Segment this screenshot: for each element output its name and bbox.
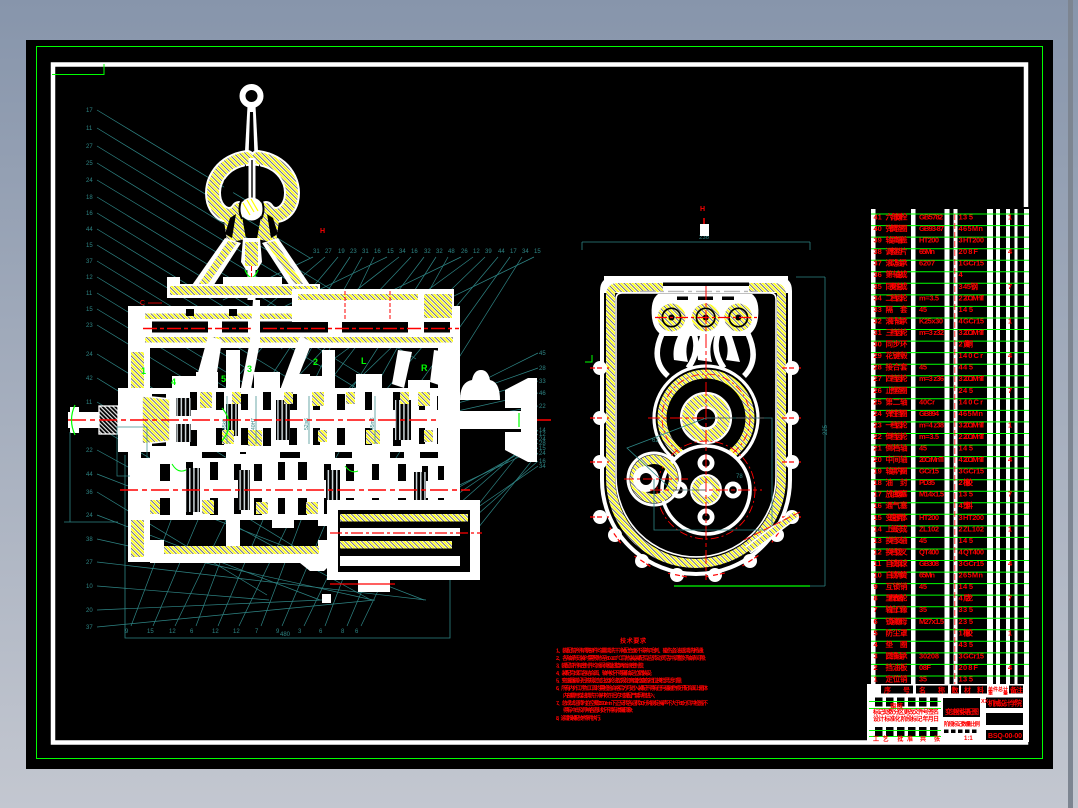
svg-text:31: 31 — [874, 328, 882, 337]
svg-text:换档叉轴: 换档叉轴 — [886, 535, 909, 545]
svg-text:48: 48 — [448, 249, 455, 255]
svg-text:挡油板: 挡油板 — [886, 662, 909, 672]
svg-text:L: L — [361, 356, 367, 366]
svg-text:3、装配前所有密封件均涂润滑脂,纸垫两面涂密封胶;: 3、装配前所有密封件均涂润滑脂,纸垫两面涂密封胶; — [556, 662, 644, 670]
svg-text:备注: 备注 — [1009, 686, 1023, 695]
svg-text:26: 26 — [461, 249, 468, 255]
svg-text:22: 22 — [874, 432, 882, 441]
svg-text:2: 2 — [874, 663, 878, 672]
svg-text:2: 2 — [313, 357, 318, 367]
svg-text:1: 1 — [1008, 628, 1012, 637]
svg-text:15: 15 — [86, 243, 93, 249]
svg-text:20CrMnTi: 20CrMnTi — [963, 374, 984, 383]
svg-text:二档齿轮: 二档齿轮 — [886, 292, 909, 302]
svg-text:22: 22 — [86, 448, 93, 454]
svg-text:34: 34 — [539, 464, 546, 470]
svg-text:互锁销: 互锁销 — [886, 581, 909, 591]
svg-text:PD35: PD35 — [919, 478, 935, 487]
svg-text:4: 4 — [171, 377, 176, 387]
svg-text:20CrMnTi: 20CrMnTi — [963, 328, 984, 337]
svg-text:78: 78 — [736, 474, 743, 480]
svg-text:8: 8 — [874, 594, 878, 603]
svg-text:1: 1 — [141, 366, 146, 376]
svg-text:设计 标准化 阶段标记 年月日: 设计 标准化 阶段标记 年月日 — [873, 715, 939, 723]
svg-text:上盖总成: 上盖总成 — [886, 523, 909, 533]
svg-text:31: 31 — [313, 249, 320, 255]
svg-text:44: 44 — [86, 472, 93, 478]
svg-text:12: 12 — [233, 629, 240, 635]
svg-text:35: 35 — [963, 213, 973, 222]
svg-text:45: 45 — [963, 536, 973, 545]
svg-text:37: 37 — [874, 259, 882, 268]
svg-text:ZL102: ZL102 — [963, 524, 984, 533]
svg-text:m=4 z38: m=4 z38 — [919, 420, 944, 429]
svg-text:45: 45 — [919, 305, 927, 314]
svg-text:45钢: 45钢 — [963, 281, 979, 291]
svg-text:12: 12 — [874, 548, 882, 557]
svg-text:18: 18 — [86, 195, 93, 201]
svg-text:定位销: 定位销 — [886, 674, 909, 684]
svg-text:65Mn: 65Mn — [919, 247, 935, 256]
svg-text:08F: 08F — [963, 663, 978, 672]
svg-text:45: 45 — [963, 444, 973, 453]
svg-text:20CrMnTi: 20CrMnTi — [963, 455, 984, 464]
svg-text:HT200: HT200 — [919, 236, 939, 245]
svg-text:40: 40 — [874, 224, 882, 233]
svg-text:45: 45 — [919, 363, 927, 372]
svg-text:31: 31 — [362, 249, 369, 255]
svg-text:审核: 审核 — [890, 701, 904, 710]
svg-text:35: 35 — [919, 605, 927, 614]
svg-text:里程表齿轮: 里程表齿轮 — [886, 593, 909, 603]
svg-text:XX: XX — [981, 699, 989, 705]
svg-text:39: 39 — [874, 236, 882, 245]
svg-text:H: H — [700, 206, 705, 213]
svg-text:1、装配前所有零部件均需清洗干净,配合面不得有毛刺、碰伤,各: 1、装配前所有零部件均需清洗干净,配合面不得有毛刺、碰伤,各油道清洗畅通; — [556, 647, 704, 655]
svg-text:44: 44 — [498, 249, 505, 255]
svg-text:32: 32 — [424, 249, 431, 255]
svg-text:QT400: QT400 — [963, 548, 984, 557]
svg-text:11: 11 — [86, 126, 93, 132]
svg-text:同步环: 同步环 — [886, 339, 909, 349]
svg-text:止推垫圈: 止推垫圈 — [886, 385, 909, 395]
svg-text:1:1: 1:1 — [964, 736, 973, 742]
svg-text:20: 20 — [86, 608, 93, 614]
svg-text:GCr15: GCr15 — [963, 467, 984, 476]
svg-text:36: 36 — [86, 490, 93, 496]
svg-text:防尘罩: 防尘罩 — [886, 627, 909, 637]
svg-text:花键毂: 花键毂 — [886, 350, 909, 360]
svg-text:GCr15: GCr15 — [963, 651, 984, 660]
svg-text:5: 5 — [874, 628, 878, 637]
svg-text:4、装配完成后各结合面、轴伸处不得漏油,定位销装妥;: 4、装配完成后各结合面、轴伸处不得漏油,定位销装妥; — [556, 669, 652, 677]
svg-text:32: 32 — [874, 316, 882, 325]
svg-text:GCr15: GCr15 — [963, 259, 984, 268]
svg-text:20: 20 — [874, 455, 882, 464]
svg-text:自锁钢球: 自锁钢球 — [886, 558, 909, 568]
svg-text:材 料: 材 料 — [963, 686, 984, 695]
svg-text:24: 24 — [539, 451, 546, 457]
svg-text:1: 1 — [1008, 524, 1012, 533]
svg-text:7: 7 — [1008, 490, 1012, 499]
svg-text:7: 7 — [1008, 386, 1012, 395]
svg-text:橡胶: 橡胶 — [963, 627, 974, 637]
svg-text:序 号: 序 号 — [883, 686, 910, 695]
svg-text:35: 35 — [963, 605, 973, 614]
svg-text:15: 15 — [86, 307, 93, 313]
svg-text:7: 7 — [1008, 594, 1012, 603]
svg-text:24: 24 — [86, 178, 93, 184]
svg-text:27: 27 — [86, 560, 93, 566]
svg-text:23: 23 — [874, 420, 882, 429]
svg-text:28: 28 — [539, 366, 546, 372]
svg-text:35: 35 — [963, 617, 973, 626]
svg-text:41: 41 — [874, 213, 882, 222]
svg-text:16: 16 — [411, 249, 418, 255]
svg-text:36: 36 — [874, 270, 882, 279]
svg-text:GCr15: GCr15 — [963, 559, 984, 568]
svg-text:数: 数 — [952, 686, 960, 695]
svg-text:7: 7 — [1008, 282, 1012, 291]
svg-text:35: 35 — [963, 490, 973, 499]
svg-text:第二轴: 第二轴 — [886, 396, 909, 406]
svg-text:08F: 08F — [963, 247, 978, 256]
svg-text:HT200: HT200 — [919, 513, 939, 522]
svg-text:24: 24 — [874, 409, 883, 418]
svg-text:通气塞: 通气塞 — [886, 500, 909, 510]
svg-text:15: 15 — [387, 249, 394, 255]
svg-text:45m6: 45m6 — [370, 417, 376, 430]
svg-text:BSQ-00-00: BSQ-00-00 — [988, 733, 1022, 740]
svg-text:塑料: 塑料 — [963, 500, 974, 510]
svg-text:08F: 08F — [919, 663, 931, 672]
svg-text:34: 34 — [399, 249, 406, 255]
svg-text:QT400: QT400 — [919, 548, 939, 557]
svg-text:5: 5 — [221, 374, 226, 384]
svg-text:25: 25 — [874, 397, 882, 406]
svg-text:40Cr: 40Cr — [919, 397, 935, 406]
svg-text:35: 35 — [874, 282, 882, 291]
svg-text:10: 10 — [86, 584, 93, 590]
svg-text:标记 处数 分区 更改文件号 签名: 标记 处数 分区 更改文件号 签名 — [872, 708, 939, 716]
svg-text:6: 6 — [874, 617, 878, 626]
svg-text:38: 38 — [874, 247, 882, 256]
svg-text:2、各轴承安装时需预热至80-100℃后热装,装配后应转动灵: 2、各轴承安装时需预热至80-100℃后热装,装配后应转动灵活并调整好轴承间隙; — [556, 654, 706, 662]
svg-text:第一轴总成: 第一轴总成 — [886, 269, 909, 279]
svg-text:62: 62 — [652, 438, 659, 444]
svg-text:11: 11 — [874, 559, 882, 568]
svg-text:GB894: GB894 — [919, 409, 940, 418]
svg-text:22: 22 — [539, 404, 546, 410]
svg-text:45: 45 — [539, 351, 546, 357]
svg-text:滚动轴承: 滚动轴承 — [886, 258, 909, 268]
svg-text:放油螺塞: 放油螺塞 — [885, 489, 909, 499]
svg-text:12: 12 — [212, 629, 219, 635]
svg-text:调整垫片: 调整垫片 — [886, 246, 908, 256]
svg-text:39: 39 — [485, 249, 492, 255]
svg-text:33: 33 — [539, 379, 546, 385]
svg-text:3: 3 — [874, 651, 878, 660]
svg-text:13: 13 — [874, 536, 882, 545]
svg-text:35: 35 — [919, 675, 927, 684]
svg-text:7、总成试运转时,在空载1500r/min下正反转各运转30: 7、总成试运转时,在空载1500r/min下正反转各运转30分钟,测定噪声不大于… — [556, 699, 709, 707]
svg-text:28: 28 — [874, 363, 882, 372]
svg-text:1: 1 — [1008, 213, 1012, 222]
svg-text:橡胶: 橡胶 — [963, 477, 974, 487]
svg-text:32: 32 — [436, 249, 443, 255]
svg-text:10: 10 — [874, 571, 882, 580]
svg-text:ZL102: ZL102 — [919, 524, 939, 533]
svg-text:三档齿轮: 三档齿轮 — [886, 327, 909, 337]
svg-text:34: 34 — [522, 249, 529, 255]
svg-text:14: 14 — [874, 524, 883, 533]
svg-text:名 称: 名 称 — [919, 686, 945, 695]
svg-text:44: 44 — [86, 227, 93, 233]
svg-text:20CrMnTi: 20CrMnTi — [963, 420, 984, 429]
svg-text:45: 45 — [919, 582, 927, 591]
svg-text:工艺 批准: 工艺 批准 — [873, 735, 913, 743]
svg-text:自锁弹簧: 自锁弹簧 — [886, 570, 909, 580]
svg-text:46: 46 — [539, 391, 546, 397]
svg-text:C: C — [140, 300, 145, 307]
svg-text:H: H — [320, 228, 325, 235]
svg-text:倒档轴: 倒档轴 — [885, 443, 909, 453]
svg-text:42: 42 — [86, 376, 93, 382]
svg-text:弹性挡圈: 弹性挡圈 — [886, 408, 909, 418]
svg-text:12: 12 — [169, 629, 176, 635]
svg-text:尼龙: 尼龙 — [963, 593, 974, 603]
svg-text:中间轴: 中间轴 — [886, 454, 909, 464]
svg-text:同步器总成: 同步器总成 — [886, 281, 909, 291]
svg-text:8、涂漆按装配技术条件执行。: 8、涂漆按装配技术条件执行。 — [556, 714, 604, 722]
svg-text:27: 27 — [874, 374, 882, 383]
svg-text:19: 19 — [874, 467, 882, 476]
svg-text:7: 7 — [874, 605, 878, 614]
svg-text:9: 9 — [874, 582, 878, 591]
svg-text:换档拨叉: 换档拨叉 — [886, 547, 909, 557]
svg-text:20CrMnTi: 20CrMnTi — [963, 432, 984, 441]
svg-text:65Mn: 65Mn — [963, 409, 983, 418]
svg-text:45: 45 — [919, 444, 927, 453]
svg-text:1: 1 — [1008, 420, 1012, 429]
svg-text:1: 1 — [874, 675, 878, 684]
svg-text:GB93-87: GB93-87 — [919, 224, 944, 233]
svg-text:滚针轴承: 滚针轴承 — [886, 315, 909, 325]
svg-text:30: 30 — [874, 340, 882, 349]
svg-text:M14x1.5: M14x1.5 — [919, 490, 944, 499]
svg-text:5、变速器装好后按规定加注齿轮油至规定高度,检查各档位换档灵: 5、变速器装好后按规定加注齿轮油至规定高度,检查各档位换档灵活可靠; — [556, 677, 682, 685]
svg-text:3: 3 — [247, 364, 252, 374]
svg-text:15: 15 — [534, 249, 541, 255]
svg-text:65Mn: 65Mn — [919, 571, 935, 580]
svg-text:45: 45 — [963, 305, 973, 314]
svg-text:37: 37 — [86, 625, 93, 631]
svg-text:m=3.5: m=3.5 — [919, 432, 939, 441]
svg-text:15: 15 — [147, 629, 154, 635]
svg-text:得有冲击及异响,各密封处不得有渗漏现象;: 得有冲击及异响,各密封处不得有渗漏现象; — [562, 706, 633, 714]
svg-text:34: 34 — [874, 293, 883, 302]
svg-text:35: 35 — [963, 675, 973, 684]
svg-text:23: 23 — [350, 249, 357, 255]
svg-text:21: 21 — [874, 444, 882, 453]
svg-text:11: 11 — [86, 291, 93, 297]
svg-text:四档齿轮: 四档齿轮 — [886, 373, 909, 383]
svg-text:19: 19 — [338, 249, 345, 255]
svg-text:30208: 30208 — [919, 651, 939, 660]
svg-text:m=3.5: m=3.5 — [919, 293, 939, 302]
svg-text:GCr15: GCr15 — [919, 467, 939, 476]
svg-text:R: R — [421, 363, 428, 373]
svg-text:20CrMnTi: 20CrMnTi — [963, 293, 984, 302]
svg-text:16: 16 — [374, 249, 381, 255]
svg-text:GB5782: GB5782 — [919, 213, 943, 222]
svg-text:24: 24 — [86, 352, 93, 358]
svg-text:接合套: 接合套 — [886, 362, 909, 372]
svg-text:45: 45 — [963, 386, 973, 395]
svg-text:M27x1.5: M27x1.5 — [919, 617, 944, 626]
svg-text:20CrMnTi: 20CrMnTi — [919, 455, 944, 464]
svg-text:锁紧螺母: 锁紧螺母 — [886, 616, 909, 626]
svg-text:37: 37 — [86, 259, 93, 265]
svg-text:内部需用煤油清洗干净并吹干后方可装配,严禁异物进入;: 内部需用煤油清洗干净并吹干后方可装配,严禁异物进入; — [563, 692, 655, 700]
svg-text:HT200: HT200 — [963, 513, 984, 522]
svg-text:225: 225 — [823, 424, 829, 435]
svg-text:16: 16 — [86, 211, 93, 217]
svg-text:HT200: HT200 — [963, 236, 984, 245]
svg-text:GCr15: GCr15 — [963, 316, 984, 325]
svg-text:38: 38 — [86, 537, 93, 543]
svg-text:1: 1 — [1008, 316, 1012, 325]
svg-text:45: 45 — [963, 582, 973, 591]
svg-text:m=3 z36: m=3 z36 — [919, 374, 944, 383]
svg-text:输出凸缘: 输出凸缘 — [886, 604, 909, 614]
svg-text:变速器装配图: 变速器装配图 — [945, 707, 979, 716]
svg-text:轴承端盖: 轴承端盖 — [886, 235, 909, 245]
svg-text:12: 12 — [473, 249, 480, 255]
svg-text:25: 25 — [86, 161, 93, 167]
svg-text:共 张: 共 张 — [920, 735, 941, 743]
svg-text:GB308: GB308 — [919, 559, 939, 568]
svg-text:弹簧垫圈: 弹簧垫圈 — [886, 223, 909, 233]
svg-text:圆锥轴承: 圆锥轴承 — [886, 650, 909, 660]
svg-text:倒档齿轮: 倒档齿轮 — [885, 431, 909, 441]
svg-text:黄铜: 黄铜 — [963, 339, 974, 349]
svg-text:6207: 6207 — [919, 259, 935, 268]
svg-text:40Cr: 40Cr — [963, 351, 983, 360]
svg-text:65Mn: 65Mn — [963, 571, 983, 580]
svg-text:变速器壳体: 变速器壳体 — [886, 512, 909, 522]
svg-text:480: 480 — [280, 632, 291, 638]
svg-text:轴承内圈: 轴承内圈 — [886, 466, 909, 476]
svg-text:15: 15 — [874, 513, 882, 522]
svg-text:17: 17 — [510, 249, 517, 255]
svg-text:45: 45 — [919, 536, 927, 545]
svg-text:六角螺栓: 六角螺栓 — [886, 212, 909, 222]
svg-text:6、所有内外工序加工面均需检验合格后方可进入装配,不得有任何: 6、所有内外工序加工面均需检验合格后方可进入装配,不得有任何磕碰伤痕于配合面上,… — [556, 684, 709, 692]
svg-text:45: 45 — [963, 363, 973, 372]
svg-text:35: 35 — [963, 640, 973, 649]
svg-text:技术要求: 技术要求 — [620, 637, 647, 645]
svg-text:阶段标记 数量 比例: 阶段标记 数量 比例 — [944, 720, 980, 728]
svg-text:18: 18 — [874, 478, 882, 487]
svg-text:27: 27 — [86, 144, 93, 150]
svg-text:33: 33 — [874, 305, 882, 314]
svg-text:26: 26 — [874, 386, 882, 395]
svg-text:11: 11 — [86, 400, 93, 406]
svg-text:24: 24 — [86, 513, 93, 519]
svg-text:m=3 z32: m=3 z32 — [919, 328, 944, 337]
svg-text:机械设计学院: 机械设计学院 — [988, 699, 1022, 708]
svg-text:65Mn: 65Mn — [963, 224, 983, 233]
svg-text:17: 17 — [86, 108, 93, 114]
svg-text:27: 27 — [325, 249, 332, 255]
svg-text:一档齿轮: 一档齿轮 — [886, 419, 909, 429]
svg-text:12: 12 — [86, 275, 93, 281]
svg-text:17: 17 — [874, 490, 882, 499]
svg-text:40Cr: 40Cr — [963, 397, 983, 406]
svg-text:16: 16 — [874, 501, 882, 510]
svg-text:29: 29 — [874, 351, 882, 360]
svg-text:23: 23 — [86, 323, 93, 329]
svg-text:K25x30: K25x30 — [919, 316, 943, 325]
